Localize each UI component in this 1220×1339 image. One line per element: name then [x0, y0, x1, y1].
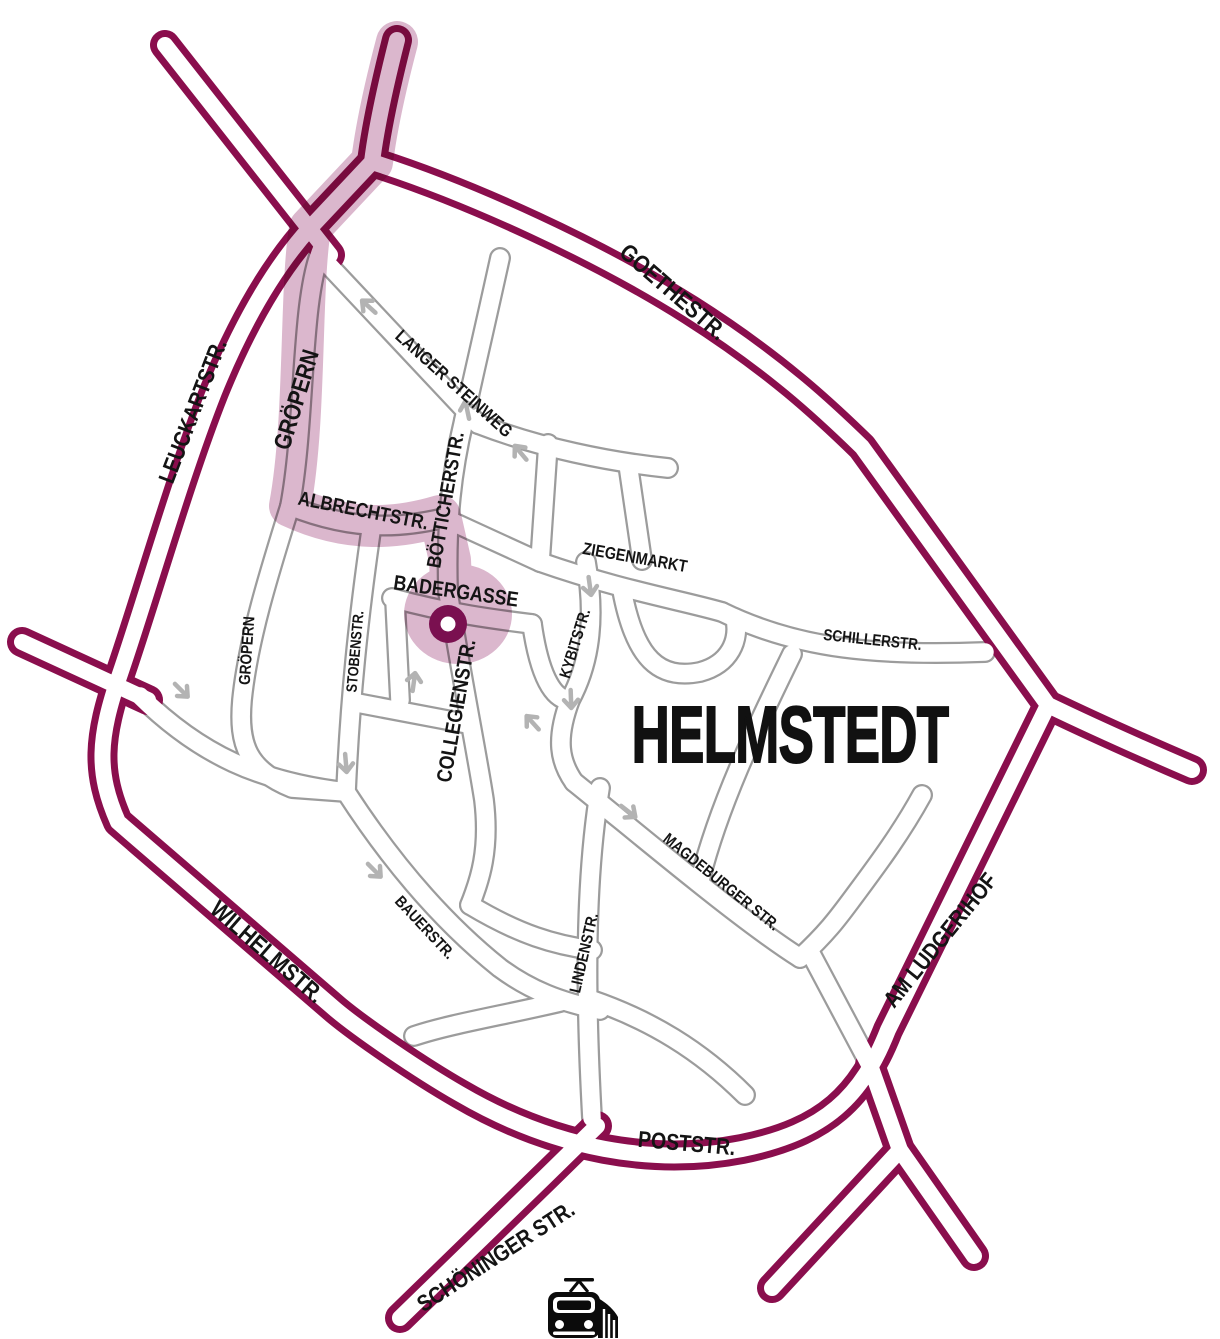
street-fills	[140, 248, 985, 1118]
destination-marker	[429, 605, 467, 643]
train-icon	[548, 1278, 618, 1338]
label-wilhelmstr: WILHELMSTR.	[205, 895, 330, 1008]
one-way-arrow	[521, 711, 543, 734]
main-road-casings	[22, 40, 1192, 1318]
marker-inner-dot	[441, 617, 456, 632]
map-canvas: GOETHESTR. LEUCKARTSTR. WILHELMSTR. POST…	[0, 0, 1220, 1339]
label-am-ludgerihof: AM LUDGERIHOF	[878, 868, 1002, 1012]
street-casings	[140, 248, 985, 1118]
one-way-arrow	[363, 859, 386, 882]
one-way-arrow	[170, 679, 193, 702]
helmstedt-city-map: GOETHESTR. LEUCKARTSTR. WILHELMSTR. POST…	[0, 0, 1220, 1339]
city-title: HELMSTEDT	[632, 691, 949, 780]
